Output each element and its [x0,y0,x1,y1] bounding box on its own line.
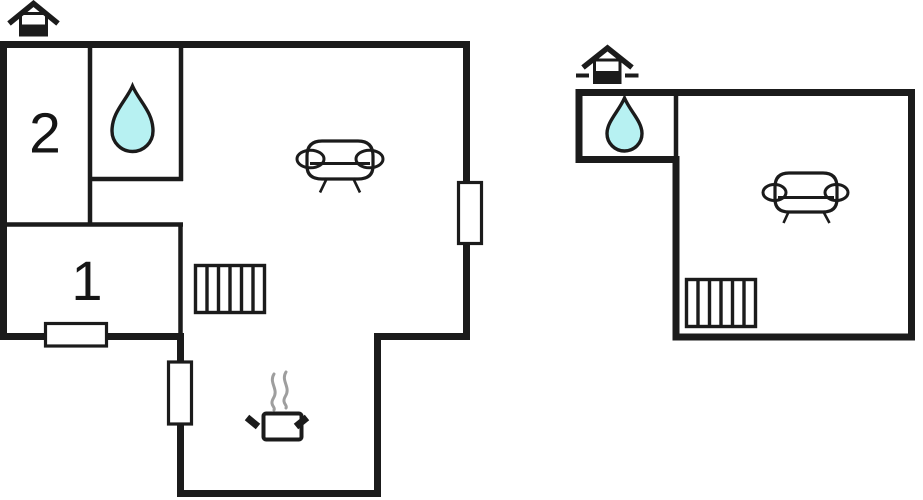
window-marker-kitchen [169,362,192,424]
house-upper-floor-icon [576,48,639,83]
room-label-1: 1 [71,249,102,312]
house-ground-floor-icon [9,4,58,36]
radiator-icon [196,266,265,313]
room-label-2: 2 [29,102,61,166]
floor-plan-canvas: 2 1 [0,0,923,500]
radiator-icon [687,280,756,327]
upper-floor-plan [579,93,912,338]
window-marker-bottom [46,324,107,347]
ground-floor-plan: 2 1 [4,45,482,494]
window-marker-right [459,183,482,244]
